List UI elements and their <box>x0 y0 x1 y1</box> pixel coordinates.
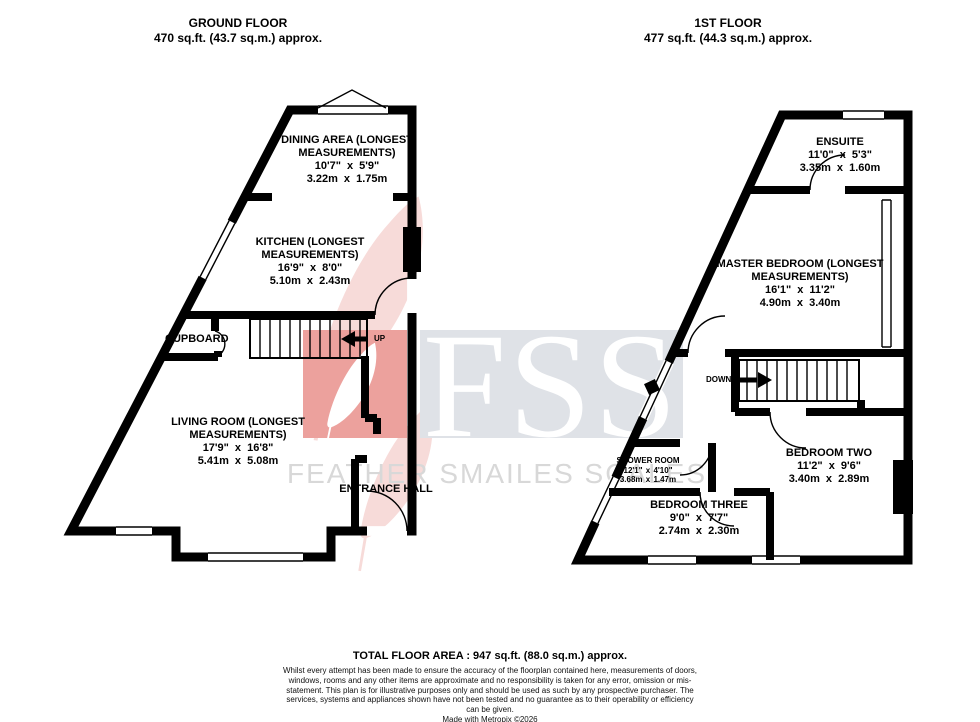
room-label-kitchen: KITCHEN (LONGEST MEASUREMENTS) 16'9" x 8… <box>225 236 395 288</box>
room-metric: 5.41m x 5.08m <box>143 455 333 468</box>
room-imperial: 11'2" x 9'6" <box>749 460 909 473</box>
door-arc <box>367 491 407 531</box>
room-metric: 5.10m x 2.43m <box>225 275 395 288</box>
entrance-hall-label: ENTRANCE HALL <box>339 483 433 495</box>
room-label-ensuite: ENSUITE 11'0" x 5'3" 3.35m x 1.60m <box>765 136 915 175</box>
first-floor-plan <box>578 111 913 564</box>
room-imperial: 17'9" x 16'8" <box>143 442 333 455</box>
room-name: SHOWER ROOM <box>608 456 688 466</box>
room-metric: 3.35m x 1.60m <box>765 162 915 175</box>
room-label-dining-area: DINING AREA (LONGEST MEASUREMENTS) 10'7"… <box>267 134 427 186</box>
floorplan-drawing <box>0 0 980 722</box>
room-metric: 3.22m x 1.75m <box>267 173 427 186</box>
door-arc <box>770 412 806 448</box>
room-imperial: 12'1" x 4'10" <box>608 466 688 476</box>
room-metric: 3.68m x 1.47m <box>608 475 688 485</box>
total-floor-area: TOTAL FLOOR AREA : 947 sq.ft. (88.0 sq.m… <box>0 650 980 662</box>
room-name: KITCHEN (LONGEST MEASUREMENTS) <box>225 236 395 262</box>
window-gap <box>595 478 616 522</box>
room-name: LIVING ROOM (LONGEST MEASUREMENTS) <box>143 416 333 442</box>
entrance-hall-walls <box>355 459 367 531</box>
room-label-master-bedroom: MASTER BEDROOM (LONGEST MEASUREMENTS) 16… <box>700 258 900 310</box>
cupboard-label: CUPBOARD <box>165 333 229 345</box>
ground-chimney <box>403 227 421 272</box>
room-name: BEDROOM TWO <box>749 447 909 460</box>
disclaimer-text: Whilst every attempt has been made to en… <box>280 666 700 715</box>
room-name: ENSUITE <box>765 136 915 149</box>
room-metric: 2.74m x 2.30m <box>624 525 774 538</box>
room-metric: 4.90m x 3.40m <box>700 297 900 310</box>
room-name: DINING AREA (LONGEST MEASUREMENTS) <box>267 134 427 160</box>
room-name: MASTER BEDROOM (LONGEST MEASUREMENTS) <box>700 258 900 284</box>
room-label-bedroom-two: BEDROOM TWO 11'2" x 9'6" 3.40m x 2.89m <box>749 447 909 486</box>
ground-hall-walls <box>365 356 377 434</box>
room-imperial: 11'0" x 5'3" <box>765 149 915 162</box>
metropix-credit: Made with Metropix ©2026 <box>0 715 980 722</box>
room-metric: 3.40m x 2.89m <box>749 473 909 486</box>
room-imperial: 10'7" x 5'9" <box>267 160 427 173</box>
room-imperial: 9'0" x 7'7" <box>624 512 774 525</box>
room-imperial: 16'1" x 11'2" <box>700 284 900 297</box>
room-label-shower-room: SHOWER ROOM 12'1" x 4'10" 3.68m x 1.47m <box>608 456 688 485</box>
up-label: UP <box>374 334 385 343</box>
up-arrow-head-icon <box>341 331 355 347</box>
door-arc <box>688 316 725 353</box>
floorplan-canvas: FSS FEATHER SMAILES SCALES <box>0 0 980 722</box>
room-label-bedroom-three: BEDROOM THREE 9'0" x 7'7" 2.74m x 2.30m <box>624 499 774 538</box>
footer: TOTAL FLOOR AREA : 947 sq.ft. (88.0 sq.m… <box>0 650 980 722</box>
down-arrow-head-icon <box>758 372 772 388</box>
down-label: DOWN <box>706 375 731 384</box>
room-label-living-room: LIVING ROOM (LONGEST MEASUREMENTS) 17'9"… <box>143 416 333 468</box>
room-name: BEDROOM THREE <box>624 499 774 512</box>
room-imperial: 16'9" x 8'0" <box>225 262 395 275</box>
